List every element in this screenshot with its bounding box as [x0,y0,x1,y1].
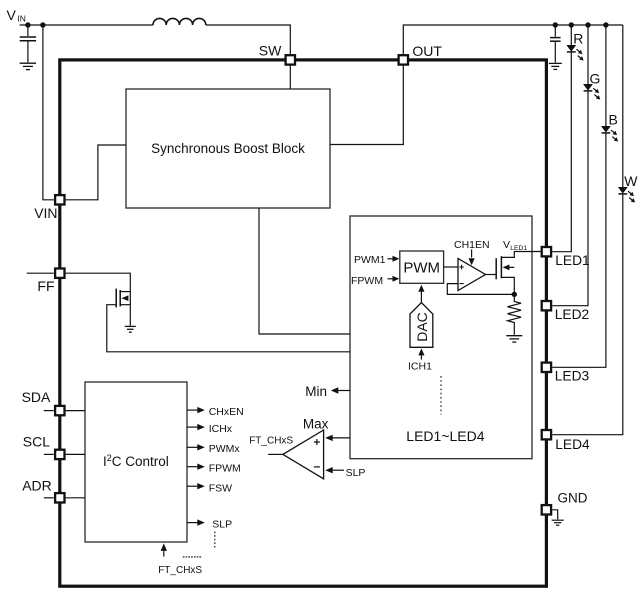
svg-text:CH1EN: CH1EN [454,239,490,251]
svg-text:SLP: SLP [346,467,366,479]
svg-text:PWMx: PWMx [209,443,241,455]
svg-text:OUT: OUT [412,43,442,59]
svg-text:IN: IN [17,14,26,24]
svg-text:LED1: LED1 [555,253,590,268]
svg-text:LED1: LED1 [510,245,527,252]
svg-text:FT_CHxS: FT_CHxS [158,565,202,576]
svg-text:R: R [573,30,583,46]
svg-text:I2C Control: I2C Control [103,453,169,469]
svg-text:FPWM: FPWM [209,463,241,475]
svg-text:PWM1: PWM1 [354,254,386,266]
svg-text:Synchronous Boost Block: Synchronous Boost Block [151,141,305,156]
svg-text:SCL: SCL [23,434,50,450]
svg-text:SLP: SLP [212,519,232,531]
svg-text:FF: FF [37,278,54,294]
svg-text:CHxEN: CHxEN [209,406,244,418]
svg-text:FSW: FSW [209,483,232,495]
svg-text:LED3: LED3 [555,369,590,384]
svg-text:B: B [609,111,618,127]
svg-text:FT_CHxS: FT_CHxS [249,435,293,446]
svg-text:W: W [624,173,638,189]
svg-text:LED1~LED4: LED1~LED4 [406,428,484,444]
svg-text:V: V [503,239,510,251]
svg-text:ICH1: ICH1 [408,361,432,373]
svg-text:SW: SW [259,43,282,59]
svg-text:LED4: LED4 [555,437,590,452]
svg-text:Max: Max [303,417,329,432]
svg-text:ICHx: ICHx [209,423,233,435]
svg-text:SDA: SDA [22,389,51,405]
svg-text:VIN: VIN [34,205,57,221]
svg-text:G: G [590,70,601,86]
svg-text:DAC: DAC [414,312,430,342]
svg-text:Min: Min [305,384,327,399]
svg-text:FPWM: FPWM [351,275,383,287]
svg-text:ADR: ADR [22,477,52,493]
svg-text:PWM: PWM [403,260,440,277]
svg-text:LED2: LED2 [555,307,590,322]
svg-text:V: V [7,7,17,23]
svg-text:GND: GND [558,491,588,506]
